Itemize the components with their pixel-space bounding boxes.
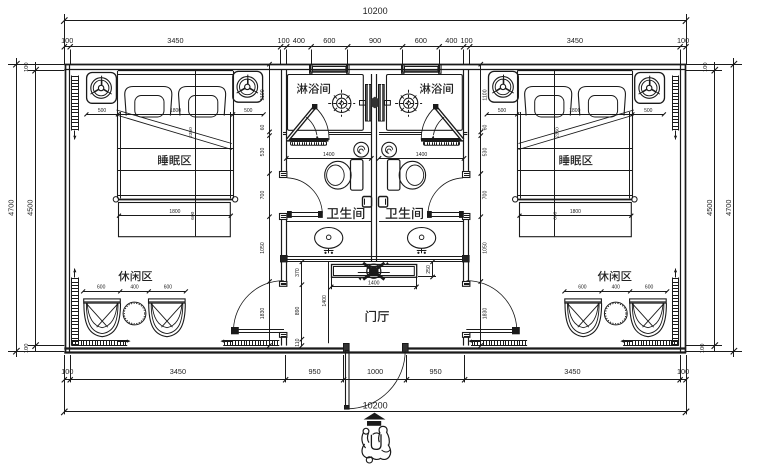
svg-text:1050: 1050 (482, 242, 488, 254)
svg-text:3450: 3450 (167, 36, 183, 45)
svg-text:4500: 4500 (705, 200, 714, 216)
svg-text:3450: 3450 (564, 367, 580, 376)
svg-text:600: 600 (164, 285, 173, 291)
svg-text:950: 950 (309, 367, 321, 376)
svg-text:700: 700 (482, 191, 488, 200)
svg-text:4500: 4500 (26, 200, 35, 216)
svg-text:900: 900 (369, 36, 381, 45)
svg-text:1050: 1050 (260, 242, 266, 254)
svg-text:100: 100 (278, 36, 290, 45)
svg-text:370: 370 (295, 268, 301, 277)
svg-text:600: 600 (415, 36, 427, 45)
svg-text:600: 600 (323, 36, 335, 45)
svg-text:400: 400 (612, 285, 621, 291)
svg-text:400: 400 (445, 36, 457, 45)
svg-text:2350: 2350 (188, 127, 194, 138)
svg-text:3450: 3450 (170, 367, 186, 376)
svg-text:10200: 10200 (363, 6, 388, 16)
svg-text:1100: 1100 (482, 89, 488, 100)
svg-text:100: 100 (677, 367, 689, 376)
svg-text:110: 110 (295, 338, 301, 346)
svg-text:600: 600 (645, 285, 654, 291)
svg-text:700: 700 (260, 191, 266, 200)
svg-text:600: 600 (190, 211, 196, 219)
svg-text:600: 600 (578, 285, 587, 291)
svg-text:3450: 3450 (567, 36, 583, 45)
svg-text:1800: 1800 (570, 209, 581, 215)
svg-text:60: 60 (260, 125, 266, 131)
svg-text:1830: 1830 (482, 308, 488, 320)
svg-text:500: 500 (98, 108, 107, 114)
svg-text:500: 500 (498, 108, 507, 114)
svg-text:530: 530 (482, 148, 488, 157)
svg-text:1830: 1830 (260, 308, 266, 320)
svg-text:1000: 1000 (367, 367, 383, 376)
svg-text:100: 100 (61, 36, 73, 45)
svg-text:250: 250 (426, 265, 432, 274)
svg-text:100: 100 (461, 36, 473, 45)
svg-text:600: 600 (97, 285, 106, 291)
svg-text:530: 530 (260, 148, 266, 157)
svg-text:4700: 4700 (6, 200, 15, 216)
svg-text:1400: 1400 (368, 281, 380, 287)
svg-text:950: 950 (430, 367, 442, 376)
svg-text:100: 100 (677, 36, 689, 45)
svg-text:1800: 1800 (170, 108, 181, 114)
svg-text:500: 500 (244, 108, 253, 114)
svg-text:890: 890 (295, 306, 301, 315)
svg-text:500: 500 (644, 108, 653, 114)
svg-text:600: 600 (553, 211, 559, 219)
svg-text:60: 60 (482, 125, 488, 131)
svg-text:1800: 1800 (169, 209, 180, 215)
svg-text:100: 100 (61, 367, 73, 376)
svg-text:1400: 1400 (322, 295, 328, 307)
svg-text:2350: 2350 (555, 127, 561, 138)
svg-text:1400: 1400 (416, 152, 428, 158)
svg-text:1400: 1400 (323, 152, 335, 158)
svg-text:400: 400 (293, 36, 305, 45)
svg-text:1800: 1800 (569, 108, 580, 114)
svg-text:4700: 4700 (724, 200, 733, 216)
svg-text:400: 400 (130, 285, 139, 291)
